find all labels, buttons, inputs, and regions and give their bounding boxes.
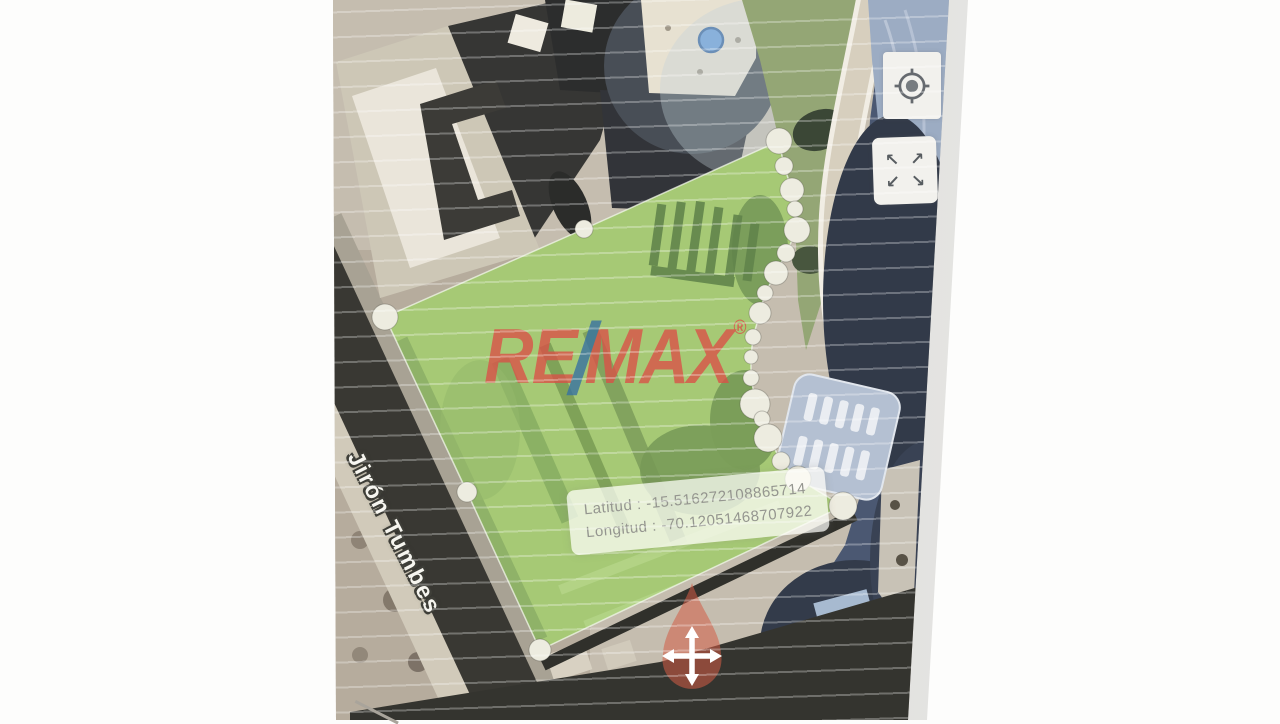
polygon-vertex-handle[interactable] [766,128,792,154]
polygon-vertex-handle[interactable] [772,452,790,470]
expand-arrow-bottom-left: ↙ [885,173,900,190]
polygon-vertex-handle[interactable] [754,424,782,452]
my-location-button[interactable] [883,52,941,119]
polygon-vertex-handle[interactable] [372,304,398,330]
expand-arrow-top-right: ↗ [910,150,925,167]
polygon-vertex-handle[interactable] [775,157,793,175]
watermark-max: MAX [584,316,731,396]
separator: : [636,496,642,513]
polygon-vertex-handle[interactable] [457,482,477,502]
watermark-slash: / [570,319,593,399]
map-canvas[interactable]: RE / MAX ® Latitud : -15.516272108865714… [0,0,1280,720]
polygon-vertex-handle[interactable] [757,285,773,301]
my-location-icon [893,67,931,105]
pan-marker[interactable] [650,580,734,702]
polygon-vertex-handle[interactable] [777,244,795,262]
remax-watermark: RE / MAX ® [484,316,745,396]
polygon-vertex-handle[interactable] [749,302,771,324]
polygon-vertex-handle[interactable] [743,370,759,386]
expand-arrow-top-left: ↖ [885,151,900,168]
watermark-re: RE [484,316,576,396]
polygon-vertex-handle[interactable] [575,220,593,238]
polygon-vertex-handle[interactable] [780,178,804,202]
latitude-label: Latitud [583,497,633,519]
move-icon [650,580,734,702]
expand-arrow-bottom-right: ↘ [911,172,926,189]
polygon-vertex-handle[interactable] [784,217,810,243]
polygon-vertex-handle[interactable] [745,329,761,345]
polygon-vertex-handle[interactable] [764,261,788,285]
polygon-vertex-handle[interactable] [829,492,857,520]
separator: : [651,518,657,535]
fullscreen-button[interactable]: ↖ ↗ ↙ ↘ [872,136,938,205]
longitude-label: Longitud [585,519,648,542]
polygon-vertex-handle[interactable] [787,201,803,217]
polygon-vertex-handle[interactable] [744,350,758,364]
photographed-map-page: RE / MAX ® Latitud : -15.516272108865714… [0,0,1280,720]
registered-trademark-symbol: ® [733,318,744,338]
place-marker-dot[interactable] [699,28,723,52]
fullscreen-icon: ↖ ↗ ↙ ↘ [885,150,926,190]
polygon-vertex-handle[interactable] [529,639,551,661]
